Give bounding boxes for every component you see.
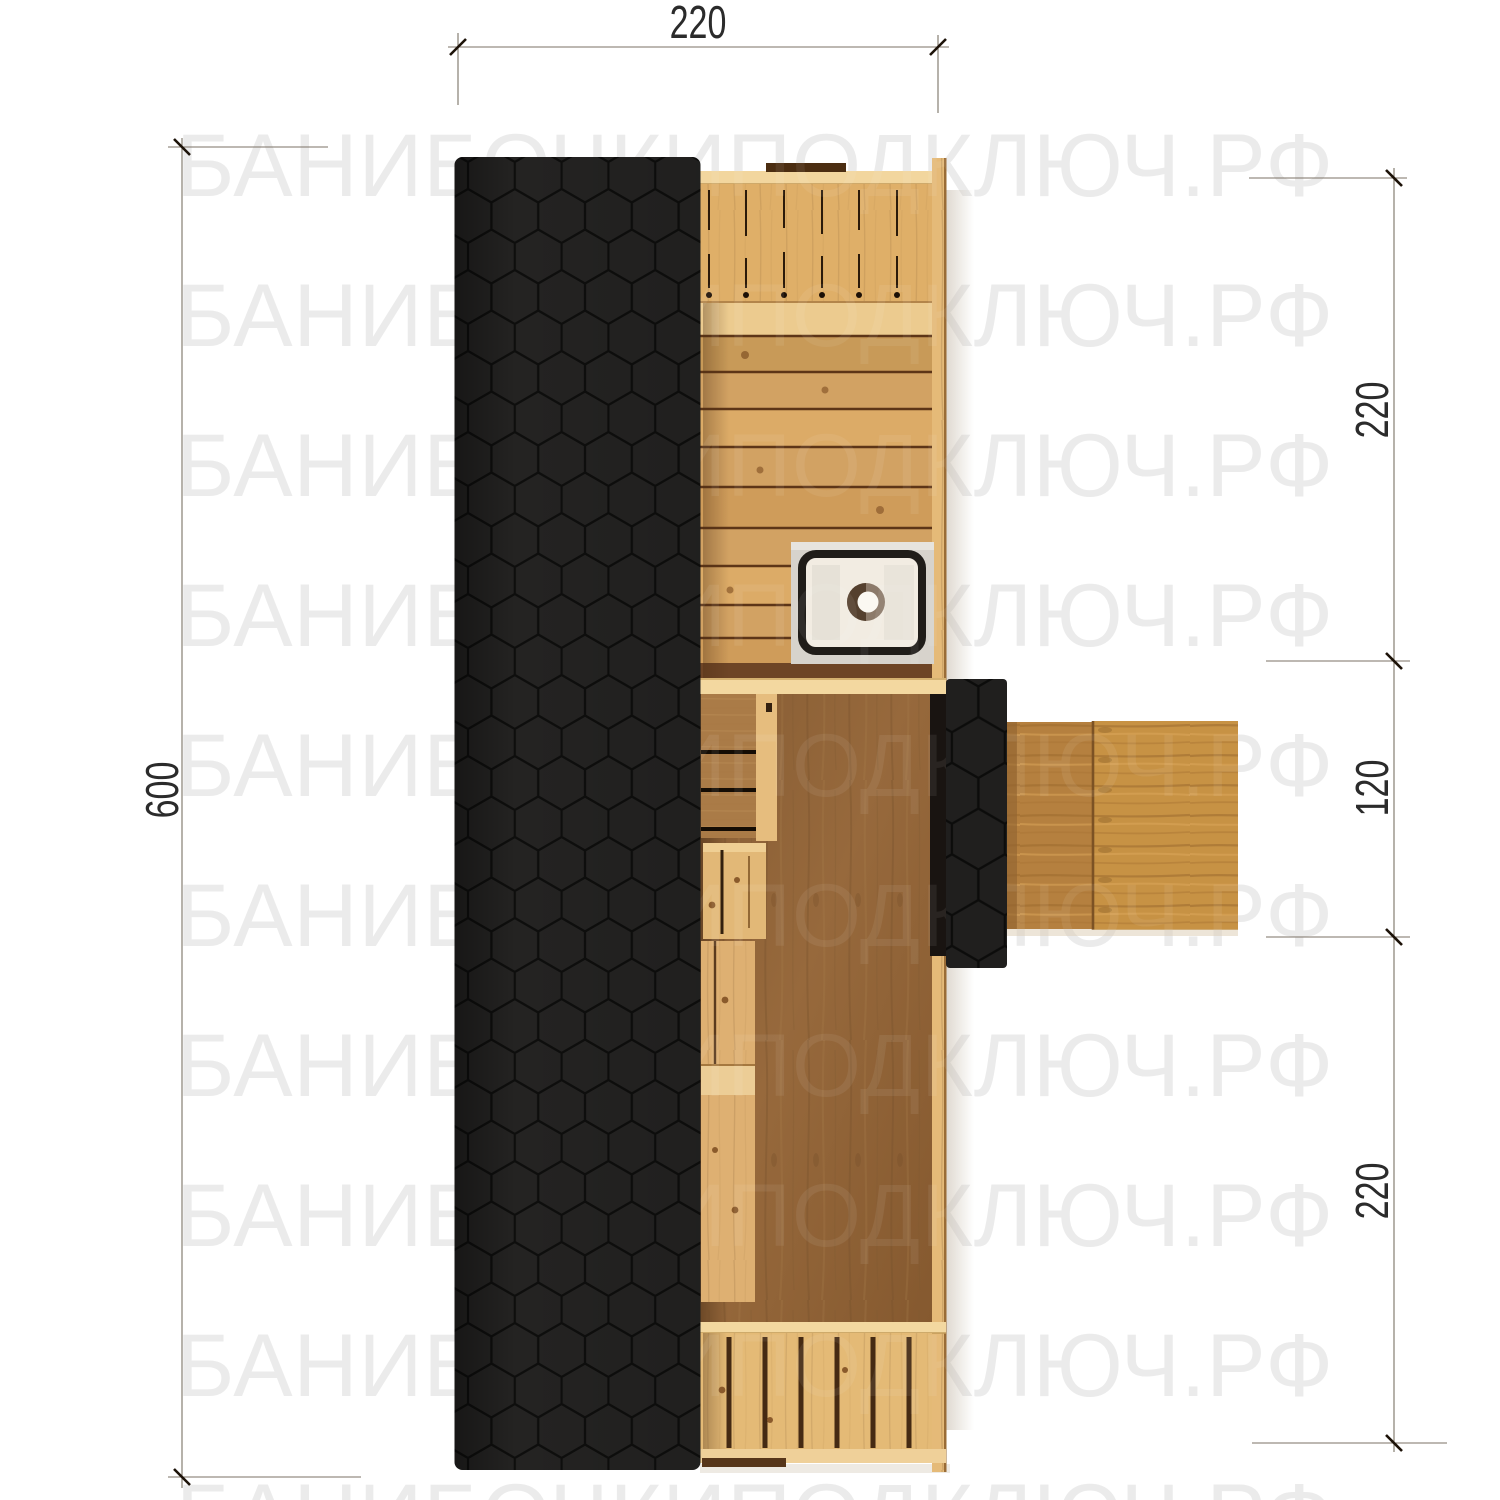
svg-text:120: 120 xyxy=(1346,760,1398,817)
svg-text:600: 600 xyxy=(136,762,188,819)
svg-text:220: 220 xyxy=(1346,1163,1398,1220)
svg-text:220: 220 xyxy=(670,0,727,48)
svg-text:220: 220 xyxy=(1346,382,1398,439)
